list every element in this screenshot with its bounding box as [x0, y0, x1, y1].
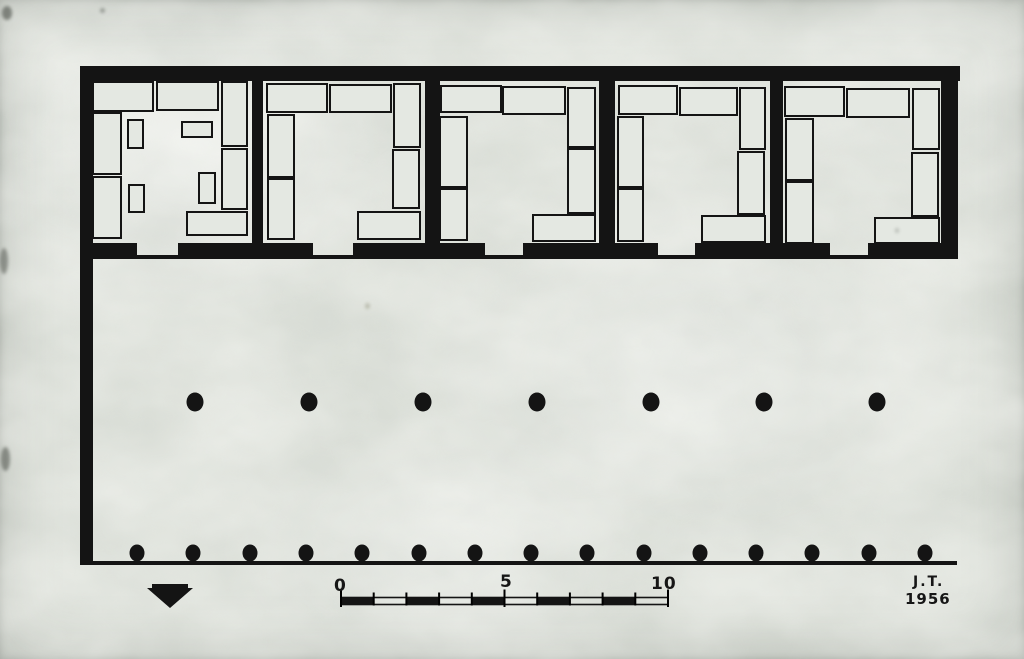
column-dot-inner	[869, 393, 886, 412]
stone-slab	[738, 152, 764, 214]
column-dot-inner	[415, 393, 432, 412]
scale-bar-tick	[373, 593, 375, 606]
west-wall	[80, 66, 93, 565]
stone-slab	[568, 88, 595, 147]
column-dot-outer	[355, 545, 370, 562]
stone-slab	[619, 86, 677, 114]
stone-slab	[129, 185, 144, 212]
scale-bar-tick	[405, 593, 407, 606]
front-wall-segment	[695, 243, 830, 257]
floor-plan-drawing	[0, 0, 1024, 659]
front-wall-segment	[80, 243, 137, 257]
column-dot-outer	[412, 545, 427, 562]
front-wall-segment	[523, 243, 658, 257]
stone-slab	[222, 82, 247, 146]
column-dot-outer	[468, 545, 483, 562]
column-dot-outer	[243, 545, 258, 562]
column-dot-outer	[637, 545, 652, 562]
stone-slab	[913, 89, 939, 149]
stone-slab	[533, 215, 595, 241]
stone-slab	[222, 149, 247, 209]
scale-bar-filled-unit	[406, 598, 439, 605]
stone-slab	[702, 216, 765, 242]
front-wall-segment	[353, 243, 485, 257]
divider-wall-2	[425, 80, 440, 257]
stone-slab	[268, 179, 294, 239]
stone-slab	[358, 212, 420, 239]
threshold-line	[80, 255, 958, 259]
stone-slab	[680, 88, 737, 115]
stone-slab	[786, 182, 813, 243]
stone-slab	[441, 86, 501, 112]
scale-bar-filled-unit	[341, 598, 374, 605]
scale-bar-major-tick	[504, 590, 506, 608]
front-wall-segment	[178, 243, 313, 257]
stone-slab	[93, 113, 121, 174]
signature-year: 1956	[905, 590, 951, 608]
column-dot-outer	[186, 545, 201, 562]
column-dot-outer	[130, 545, 145, 562]
stone-slab	[93, 177, 121, 238]
scale-bar-tick	[602, 593, 604, 606]
stone-slab	[182, 122, 212, 137]
stone-slab	[394, 84, 420, 147]
scale-bar-filled-unit	[537, 598, 570, 605]
column-dot-outer	[918, 545, 933, 562]
stone-slab	[187, 212, 247, 235]
stone-slab	[618, 189, 643, 241]
stylobate-line	[80, 561, 957, 565]
stone-slab	[875, 218, 939, 243]
divider-wall-3	[599, 80, 615, 257]
scale-label-5: 5	[500, 574, 512, 591]
scale-bar-filled-unit	[472, 598, 505, 605]
divider-wall-4	[770, 80, 783, 257]
scale-bar-tick	[471, 593, 473, 606]
signature-initials: J.T.	[913, 574, 944, 590]
photo-blemish	[2, 6, 12, 20]
column-dot-outer	[299, 545, 314, 562]
stone-slab	[568, 149, 595, 213]
stone-slab	[912, 153, 938, 216]
stone-slab	[268, 115, 294, 177]
stone-slab	[93, 82, 153, 111]
scale-bar-tick	[569, 593, 571, 606]
stone-slab	[618, 117, 643, 187]
stone-slab	[847, 89, 909, 117]
stone-slab	[440, 117, 467, 187]
column-dot-inner	[187, 393, 204, 412]
north-wall	[80, 66, 960, 81]
column-dot-inner	[756, 393, 773, 412]
stone-slab	[128, 120, 143, 148]
scale-bar-tick	[536, 593, 538, 606]
photo-blemish	[0, 248, 8, 274]
scale-bar-tick	[634, 593, 636, 606]
photo-blemish	[100, 8, 105, 13]
photo-blemish	[1, 447, 10, 471]
column-dot-inner	[529, 393, 546, 412]
east-wall	[941, 66, 958, 258]
stone-slab	[440, 189, 467, 240]
stone-slab	[267, 84, 327, 112]
scale-bar-filled-unit	[603, 598, 636, 605]
scale-bar-tick	[438, 593, 440, 606]
stone-slab	[740, 88, 765, 149]
stone-slab	[157, 82, 218, 110]
scale-label-0: 0	[334, 578, 346, 595]
front-wall-segment	[868, 243, 958, 257]
photo-blemish	[895, 228, 899, 233]
stone-slab	[786, 119, 813, 180]
stone-slab	[330, 85, 391, 112]
column-dot-outer	[524, 545, 539, 562]
stone-slab	[503, 87, 565, 114]
column-dot-inner	[643, 393, 660, 412]
scale-label-10: 10	[651, 576, 677, 593]
column-dot-outer	[749, 545, 764, 562]
column-dot-outer	[805, 545, 820, 562]
column-dot-outer	[580, 545, 595, 562]
photo-blemish	[365, 303, 370, 309]
column-dot-outer	[862, 545, 877, 562]
site-plan-photo: 0 5 10 J.T. 1956	[0, 0, 1024, 659]
divider-wall-1	[252, 80, 263, 257]
stone-slab	[785, 87, 844, 116]
stone-slab	[393, 150, 419, 208]
stone-slab	[199, 173, 215, 203]
column-dot-inner	[301, 393, 318, 412]
column-dot-outer	[693, 545, 708, 562]
